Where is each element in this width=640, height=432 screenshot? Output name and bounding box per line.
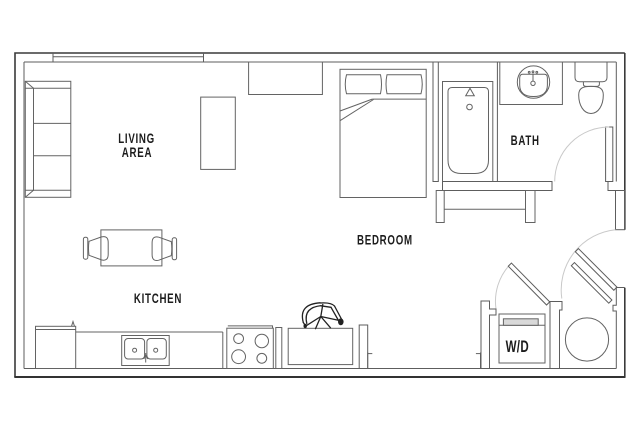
svg-text:BATH: BATH xyxy=(511,134,540,149)
svg-text:AREA: AREA xyxy=(122,146,152,161)
svg-text:LIVING: LIVING xyxy=(118,132,155,147)
svg-text:W/D: W/D xyxy=(506,338,529,357)
svg-text:KITCHEN: KITCHEN xyxy=(134,292,182,307)
svg-text:BEDROOM: BEDROOM xyxy=(357,233,413,248)
